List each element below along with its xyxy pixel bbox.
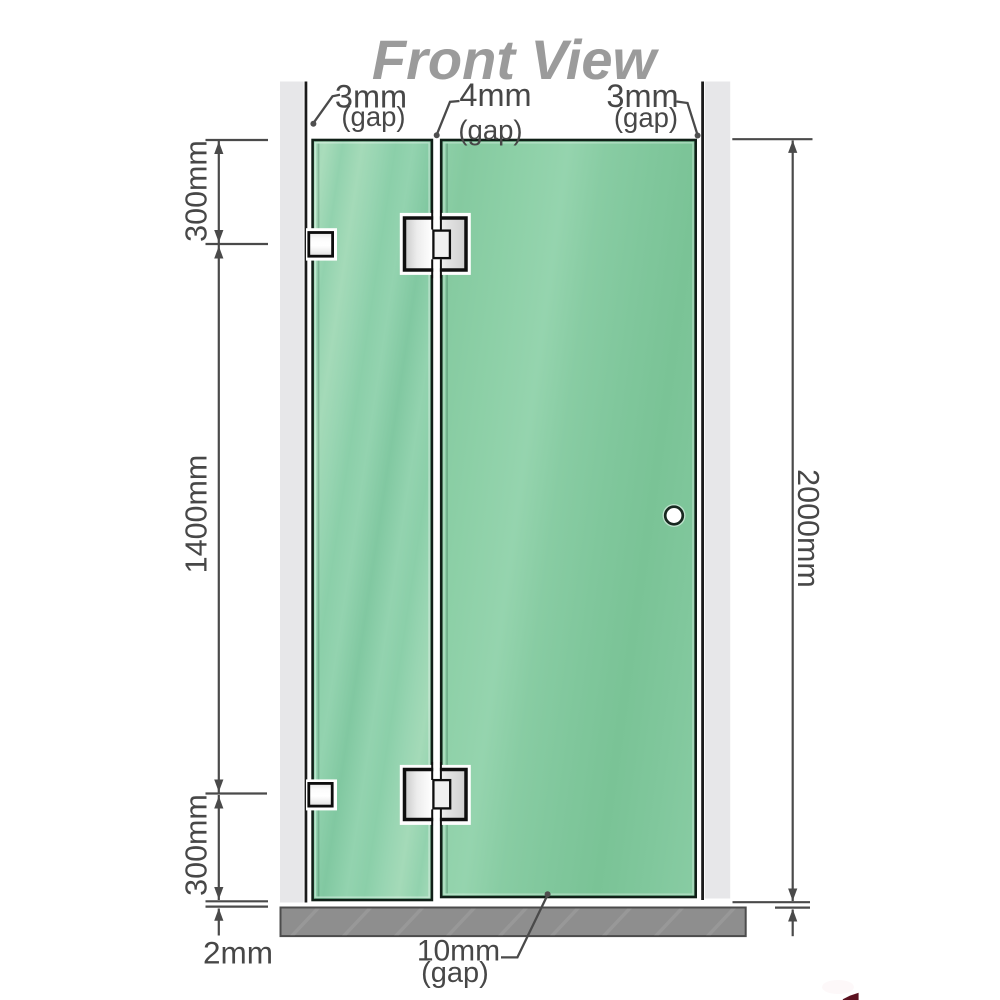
- svg-text:(gap): (gap): [421, 957, 489, 989]
- svg-text:(gap): (gap): [341, 101, 405, 132]
- svg-text:1400mm: 1400mm: [179, 455, 213, 574]
- svg-text:2000mm: 2000mm: [791, 469, 825, 588]
- svg-text:300mm: 300mm: [179, 794, 213, 896]
- svg-text:300mm: 300mm: [179, 140, 213, 242]
- svg-text:4mm: 4mm: [459, 77, 531, 113]
- svg-text:(gap): (gap): [458, 115, 522, 146]
- svg-text:2mm: 2mm: [203, 935, 273, 971]
- svg-text:(gap): (gap): [614, 102, 678, 133]
